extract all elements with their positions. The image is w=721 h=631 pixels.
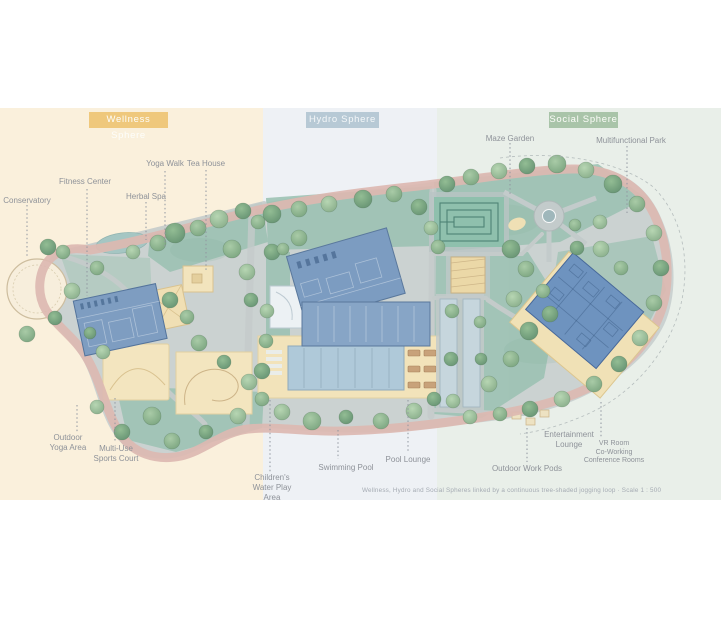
tree-icon bbox=[180, 310, 194, 324]
tree-icon bbox=[235, 203, 251, 219]
tree-icon bbox=[445, 304, 459, 318]
tree-icon bbox=[277, 243, 289, 255]
tree-icon bbox=[570, 241, 584, 255]
tree-icon bbox=[632, 330, 648, 346]
tree-icon bbox=[48, 311, 62, 325]
tree-icon bbox=[339, 410, 353, 424]
tree-icon bbox=[518, 261, 534, 277]
tree-icon bbox=[646, 295, 662, 311]
tree-icon bbox=[536, 284, 550, 298]
tree-icon bbox=[165, 223, 185, 243]
tree-icon bbox=[210, 210, 228, 228]
tree-icon bbox=[143, 407, 161, 425]
tree-icon bbox=[653, 260, 669, 276]
yoga-court bbox=[103, 344, 169, 400]
label-conservatory: Conservatory bbox=[3, 196, 51, 206]
tree-icon bbox=[506, 291, 522, 307]
tree-icon bbox=[96, 345, 110, 359]
tree-icon bbox=[386, 186, 402, 202]
tree-icon bbox=[439, 176, 455, 192]
tree-icon bbox=[354, 190, 372, 208]
label-sports-court: Multi-Use Sports Court bbox=[94, 444, 139, 464]
water-courts bbox=[436, 294, 484, 412]
tree-icon bbox=[217, 355, 231, 369]
plan-caption: Wellness, Hydro and Social Spheres linke… bbox=[362, 487, 718, 494]
tree-icon bbox=[263, 205, 281, 223]
pool-water bbox=[288, 346, 404, 390]
tree-icon bbox=[411, 199, 427, 215]
tree-icon bbox=[291, 201, 307, 217]
zone-badge-social: Social Sphere bbox=[549, 112, 618, 128]
tree-icon bbox=[126, 245, 140, 259]
zone-badge-wellness: Wellness Sphere bbox=[89, 112, 168, 128]
tree-icon bbox=[56, 245, 70, 259]
tree-icon bbox=[593, 215, 607, 229]
tree-icon bbox=[259, 334, 273, 348]
tree-icon bbox=[321, 196, 337, 212]
tree-icon bbox=[444, 352, 458, 366]
tree-icon bbox=[373, 413, 389, 429]
tree-icon bbox=[223, 240, 241, 258]
tree-icon bbox=[569, 219, 581, 231]
tree-icon bbox=[84, 327, 96, 339]
label-outdoor-work-pods: Outdoor Work Pods bbox=[492, 464, 562, 474]
tree-icon bbox=[114, 424, 130, 440]
label-pool-lounge: Pool Lounge bbox=[386, 455, 431, 465]
tea-deck bbox=[183, 266, 213, 292]
tree-icon bbox=[503, 351, 519, 367]
tree-icon bbox=[586, 376, 602, 392]
tree-icon bbox=[646, 225, 662, 241]
tree-icon bbox=[150, 235, 166, 251]
tree-icon bbox=[255, 392, 269, 406]
label-yoga-walk: Yoga Walk bbox=[146, 159, 184, 169]
tree-icon bbox=[554, 391, 570, 407]
tree-icon bbox=[474, 316, 486, 328]
tree-icon bbox=[629, 196, 645, 212]
label-tea-house: Tea House bbox=[187, 159, 225, 169]
tree-icon bbox=[190, 220, 206, 236]
tree-icon bbox=[578, 162, 594, 178]
tree-icon bbox=[611, 356, 627, 372]
label-outdoor-yoga-area: Outdoor Yoga Area bbox=[50, 433, 87, 453]
tree-icon bbox=[260, 304, 274, 318]
label-maze-garden: Maze Garden bbox=[486, 134, 534, 144]
tree-icon bbox=[239, 264, 255, 280]
tree-icon bbox=[481, 376, 497, 392]
tree-icon bbox=[427, 392, 441, 406]
tree-icon bbox=[491, 163, 507, 179]
tree-icon bbox=[431, 240, 445, 254]
tree-icon bbox=[90, 400, 104, 414]
tree-icon bbox=[522, 401, 538, 417]
tree-icon bbox=[446, 394, 460, 408]
tree-icon bbox=[303, 412, 321, 430]
tree-icon bbox=[604, 175, 622, 193]
tree-icon bbox=[519, 158, 535, 174]
masterplan-page: Wellness Sphere Hydro Sphere Social Sphe… bbox=[0, 0, 721, 631]
label-fitness-center: Fitness Center bbox=[59, 177, 111, 187]
tree-icon bbox=[593, 241, 609, 257]
label-swimming-pool: Swimming Pool bbox=[318, 463, 373, 473]
tree-icon bbox=[520, 322, 538, 340]
tree-icon bbox=[230, 408, 246, 424]
masterplan-svg bbox=[0, 0, 721, 631]
tree-icon bbox=[241, 374, 257, 390]
label-water-play-area: Children's Water Play Area bbox=[253, 473, 292, 502]
tree-icon bbox=[493, 407, 507, 421]
tree-icon bbox=[251, 215, 265, 229]
tree-icon bbox=[90, 261, 104, 275]
tree-icon bbox=[19, 326, 35, 342]
label-coworking-rooms: VR Room Co-Working Conference Rooms bbox=[584, 440, 644, 466]
tree-icon bbox=[463, 169, 479, 185]
tree-icon bbox=[614, 261, 628, 275]
tree-icon bbox=[244, 293, 258, 307]
tree-icon bbox=[274, 404, 290, 420]
tree-icon bbox=[424, 221, 438, 235]
tree-icon bbox=[475, 353, 487, 365]
tree-icon bbox=[463, 410, 477, 424]
tree-icon bbox=[254, 363, 270, 379]
tree-icon bbox=[64, 283, 80, 299]
wood-pavilion bbox=[446, 252, 490, 298]
label-herbal-spa: Herbal Spa bbox=[126, 192, 166, 202]
label-multifunctional-park: Multifunctional Park bbox=[596, 136, 666, 146]
tree-icon bbox=[162, 292, 178, 308]
tree-icon bbox=[548, 155, 566, 173]
tree-icon bbox=[199, 425, 213, 439]
tree-icon bbox=[40, 239, 56, 255]
tree-icon bbox=[502, 240, 520, 258]
zone-badge-hydro: Hydro Sphere bbox=[306, 112, 379, 128]
tree-icon bbox=[542, 306, 558, 322]
tree-icon bbox=[164, 433, 180, 449]
tree-icon bbox=[191, 335, 207, 351]
play-court bbox=[176, 352, 252, 414]
tree-icon bbox=[291, 230, 307, 246]
